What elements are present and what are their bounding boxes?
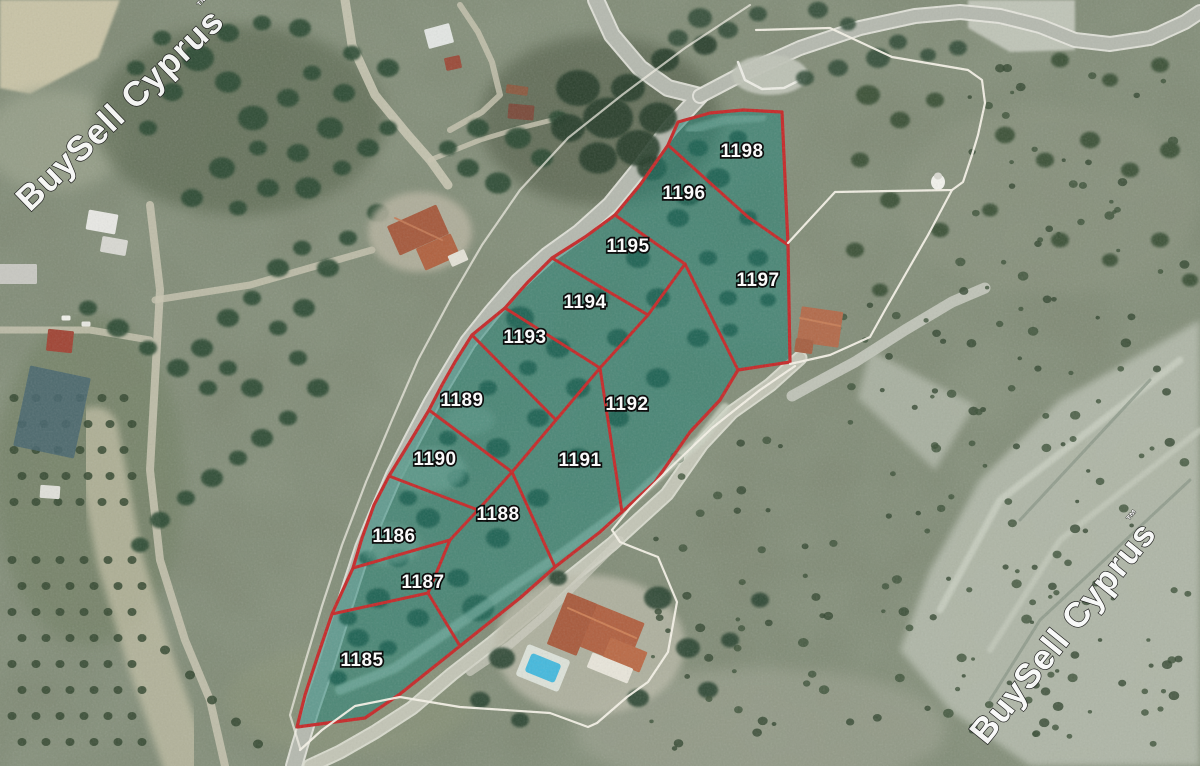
satellite-map: 1185118611871188118911901191119211931194…: [0, 0, 1200, 766]
photo-grain-layer: [0, 0, 1200, 766]
satellite-map-canvas: 1185118611871188118911901191119211931194…: [0, 0, 1200, 766]
